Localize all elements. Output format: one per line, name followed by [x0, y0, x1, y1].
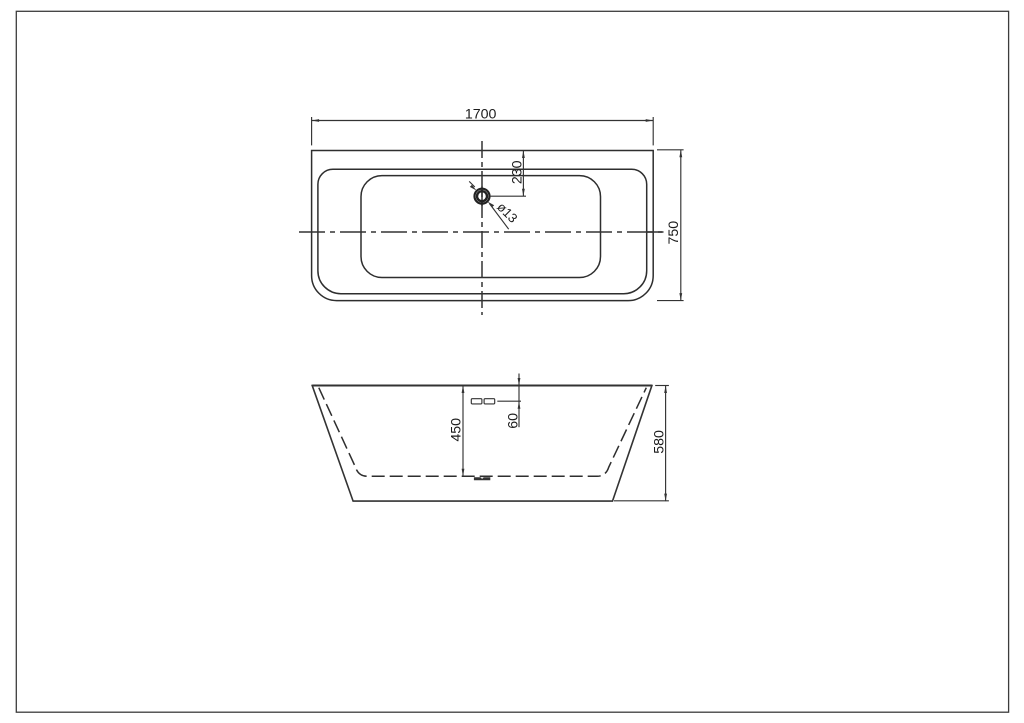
svg-text:1700: 1700 [465, 106, 497, 122]
svg-text:750: 750 [666, 221, 682, 245]
svg-text:580: 580 [652, 430, 668, 454]
svg-text:230: 230 [509, 160, 525, 184]
svg-text:ø13: ø13 [494, 199, 520, 225]
svg-text:450: 450 [449, 418, 465, 442]
svg-text:60: 60 [505, 413, 521, 429]
